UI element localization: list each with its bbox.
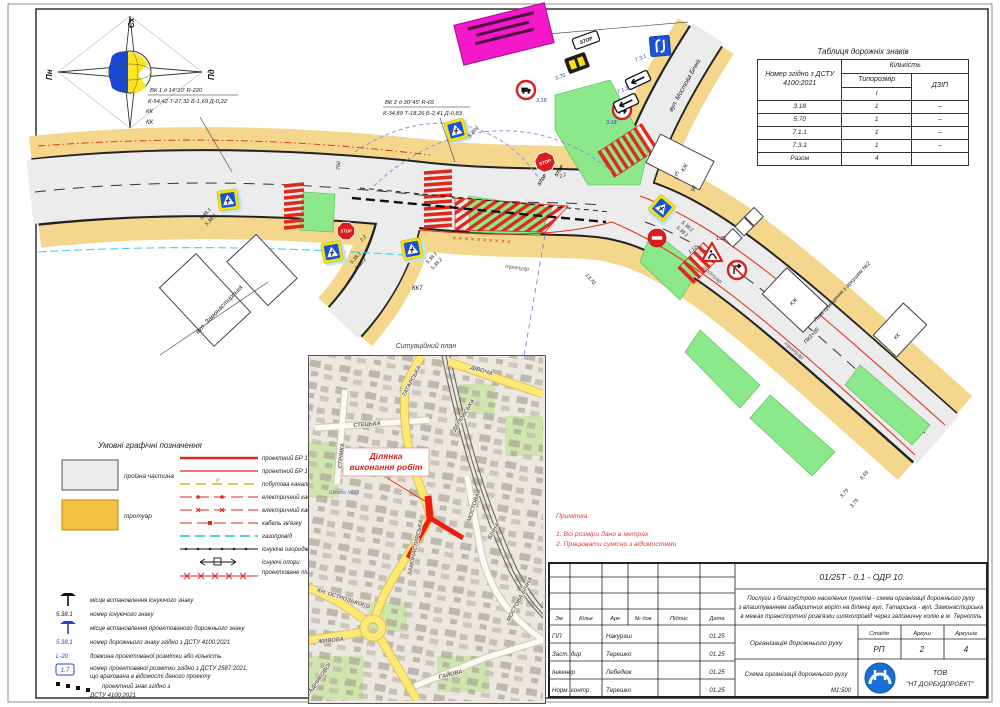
col-header: Дата	[708, 616, 725, 622]
road-signs-table: Таблиця дорожніх знаків Номер згідно з Д…	[757, 47, 969, 166]
title-block: 01/25Т - 0.1 - ОДР 10 Послуги з благоуст…	[548, 562, 988, 698]
date-cell: 01.25	[709, 687, 725, 694]
doc-number: 01/25Т - 0.1 - ОДР 10	[819, 572, 902, 582]
sign-number-label: 5.70	[555, 73, 567, 82]
dimension-label: 13,70	[583, 272, 596, 286]
sign-number-label: 3.18	[606, 120, 617, 126]
section-title: Організація дорожнього руху	[750, 639, 843, 647]
col-header: Зм	[555, 616, 563, 622]
company-name-line2: "НТ ДОРБУДПРОЕКТ"	[906, 681, 974, 688]
sign-qty-cell: 1	[842, 113, 912, 126]
legend-label: довжина проектованої розмітки або кількі…	[90, 654, 221, 660]
signs-table-title: Таблиця дорожніх знаків	[757, 47, 969, 56]
signs-table-header-number: Номер згідно з ДСТУ 4100:2021	[758, 60, 842, 101]
work-area-callout-line2: виконання робіт	[350, 462, 423, 472]
total-dzip-cell	[912, 153, 969, 166]
projected-sign-symbol	[60, 621, 76, 634]
legend-label: що врахована в відомості даного проекту	[90, 674, 211, 680]
dimension-label: 750	[336, 161, 342, 170]
sheet-value: 2	[919, 645, 925, 654]
pedestrian-crossing-sign	[320, 240, 347, 267]
col-header: № док	[634, 616, 651, 622]
detour-scheme-sign	[649, 35, 671, 57]
legend-label: проектний знак згідно з	[102, 683, 170, 690]
support-symbol	[200, 558, 236, 565]
sidewalk-label: тротуар	[505, 264, 530, 273]
legend-label: кабель зв'язку	[262, 521, 303, 527]
project-desc-line: Послуги з благоустрою населених пунктів …	[747, 595, 975, 602]
compass-north-label: Пн	[45, 69, 54, 80]
legend: Умовні графічні позначення проїзна части…	[50, 436, 330, 702]
sign-number-label: 3.18	[536, 98, 547, 104]
col-header: Підпис	[670, 616, 688, 622]
sign-number-cell: 7.3.1	[758, 140, 842, 153]
sign-dzip-cell: –	[912, 140, 969, 153]
legend-label: газопровід	[262, 534, 293, 540]
date-cell: 01.25	[709, 669, 725, 676]
sign-number-label: 7.3.1	[634, 53, 647, 64]
legend-title: Умовні графічні позначення	[97, 441, 203, 450]
name-cell: Терешко	[606, 651, 632, 658]
date-cell: 01.25	[709, 633, 725, 640]
notes-block: Примітка: 1. Всі розміри дано в метрах 2…	[556, 512, 756, 551]
compass-south-label: Пд	[207, 69, 216, 80]
curve-note: ВК 1 д 14°10' R-220	[150, 88, 203, 94]
table-total-row: Разом 4	[758, 153, 969, 166]
sign-qty-cell: 1	[842, 140, 912, 153]
legend-label: ДСТУ 4100:2021	[89, 693, 136, 699]
signs-table-header-qty: Кількість	[842, 60, 969, 74]
date-cell: 01.25	[709, 651, 725, 658]
sheets-value: 4	[964, 645, 969, 654]
no-trucks-sign	[517, 81, 535, 99]
signs-table-header-dzip: ДЗІП	[912, 73, 969, 100]
building-label: КК	[146, 109, 153, 115]
signs-table-header-size: Типорозмір	[842, 73, 912, 87]
marking-number-symbol: 1.7	[61, 668, 70, 674]
sign-number-cell: 7.1.1	[758, 126, 842, 139]
sign-qty-cell: 1	[842, 100, 912, 113]
building-label: КК7	[412, 286, 423, 292]
legend-label: існуючі опори	[262, 560, 300, 566]
sheet-label: Аркуш	[912, 631, 931, 637]
stage-label: Стадія	[869, 631, 889, 637]
company-name-line1: ТОВ	[933, 670, 948, 677]
legend-label: номер дорожнього знаку згідно з ДСТУ 410…	[90, 640, 230, 646]
situation-plan-map: Ділянка виконання робіт ТАТАРСЬКА ДІВОЧА…	[308, 355, 546, 704]
role-cell: Заст. дир	[552, 651, 582, 658]
dimension-label: 5,65	[859, 470, 870, 482]
projected-sign-dots	[56, 682, 90, 692]
total-label-cell: Разом	[758, 153, 842, 166]
role-cell: ГІП	[552, 633, 562, 640]
existing-sign-symbol	[60, 593, 76, 606]
sign-number-cell: 5.70	[758, 113, 842, 126]
legend-label: місце встановлення проектованого дорожнь…	[90, 626, 246, 632]
no-turn-sign	[728, 261, 746, 279]
no-entry-sign	[648, 229, 666, 247]
name-cell: Терешко	[606, 687, 632, 694]
marking-length-symbol: L-20	[56, 654, 69, 660]
col-header: Кільк	[579, 616, 593, 622]
work-area-callout-line1: Ділянка	[368, 451, 402, 461]
sitplan-svg: Ділянка виконання робіт ТАТАРСЬКА ДІВОЧА…	[309, 356, 543, 701]
curve-note: К-34,89 Т-18,26 Б-2,41 Д-0,83	[383, 111, 463, 117]
role-cell: Норм. контр	[552, 687, 590, 694]
curve-note: ВК 2 д 30°45' R-65	[385, 100, 435, 106]
company-logo	[865, 663, 895, 693]
note-line: 2. Працювати сумісно з відомостями	[556, 540, 756, 550]
sidewalk-swatch	[62, 500, 118, 530]
scale-value: М1:500	[831, 688, 852, 694]
drawing-title: Схема організації дорожнього руху	[744, 670, 848, 678]
legend-marks: місце встановлення існуючого знаку 5.38.…	[56, 593, 248, 699]
col-header: Арк	[609, 616, 620, 622]
sign-qty-cell: 1	[842, 126, 912, 139]
pedestrian-crossing-sign	[217, 188, 243, 214]
legend-label: номер проектованої розмітки згідно з ДСТ…	[90, 666, 248, 672]
note-line: 1. Всі розміри дано в метрах	[556, 530, 756, 540]
sign-number-cell: 3.18	[758, 100, 842, 113]
work-area-callout: Ділянка виконання робіт	[343, 448, 429, 476]
compass-east-label: Сх	[127, 17, 136, 28]
sign-dzip-cell: –	[912, 113, 969, 126]
sign-number-label: 1.32	[716, 236, 726, 242]
project-desc-line: в межах транспортної розв'язки шляхопров…	[740, 613, 981, 620]
existing-sign-number: 5.38.1	[56, 612, 73, 618]
dimension-label: 3,75	[839, 488, 850, 500]
sign-dzip-cell: –	[912, 126, 969, 139]
pedestrian-crossing-sign	[400, 237, 427, 264]
sign-dzip-cell: –	[912, 100, 969, 113]
school-label: Школа №13	[329, 490, 360, 496]
projected-sign-number: 5.38.1	[56, 640, 73, 646]
notes-title: Примітка:	[556, 512, 756, 522]
sitplan-title: Ситуаційний план	[308, 343, 544, 350]
legend-label: проїзна частина	[124, 473, 174, 480]
stop-plate-sign: STOP	[572, 30, 600, 49]
sewer-k-mark: К	[216, 478, 220, 484]
drawing-sheet: STOP	[0, 0, 1000, 707]
legend-label: тротуар	[124, 513, 152, 520]
carriageway-swatch	[62, 460, 118, 490]
table-row: 5.70 1 –	[758, 113, 969, 126]
dimension-label: 3,75	[849, 498, 860, 510]
table-row: 7.1.1 1 –	[758, 126, 969, 139]
name-cell: Накураш	[606, 633, 633, 640]
total-qty-cell: 4	[842, 153, 912, 166]
signs-table-size-value: I	[842, 87, 912, 100]
dimension-label: 175	[674, 171, 681, 180]
role-cell: Інженер	[552, 669, 576, 676]
curve-note: К-54,42 Т-27,32 Б-1,69 Д-0,22	[148, 99, 228, 105]
legend-label: номер існуючого знаку	[90, 612, 155, 618]
callout-text-line	[475, 28, 535, 46]
photo-video-sign	[564, 52, 590, 75]
stop-sign	[337, 222, 354, 239]
stage-value: РП	[873, 645, 884, 654]
table-row: 7.3.1 1 –	[758, 140, 969, 153]
legend-label-cont	[266, 578, 268, 584]
table-row: 3.18 1 –	[758, 100, 969, 113]
project-desc-line: з влаштуванням габаритних воріт на ділян…	[738, 604, 985, 611]
legend-label: місце встановлення існуючого знаку	[90, 598, 194, 604]
name-cell: Лебедюк	[605, 669, 633, 676]
sheets-label: Аркушів	[954, 631, 977, 637]
sign-number-label: 7.1.1	[616, 85, 629, 96]
building-label: КК	[146, 120, 154, 126]
